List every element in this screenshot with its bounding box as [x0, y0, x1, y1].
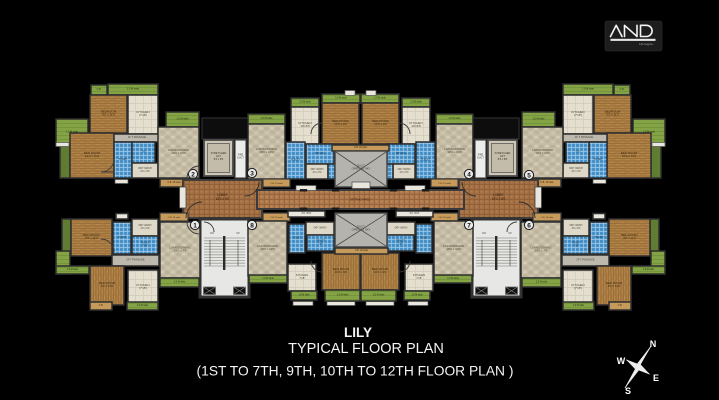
svg-text:(7'x8'): (7'x8')	[139, 286, 147, 290]
svg-text:7'x4': 7'x4'	[574, 244, 579, 247]
svg-text:1.0 M wide: 1.0 M wide	[373, 294, 385, 297]
svg-text:19'0 x 10'0: 19'0 x 10'0	[259, 150, 274, 154]
svg-text:C.B.: C.B.	[618, 305, 623, 307]
svg-text:2F T PASSAGE: 2F T PASSAGE	[128, 135, 146, 139]
svg-text:7'x4': 7'x4'	[318, 242, 323, 245]
svg-text:4: 4	[467, 171, 471, 178]
svg-text:9'0 x 11'0: 9'0 x 11'0	[608, 284, 621, 288]
svg-text:1.0 M wide: 1.0 M wide	[67, 269, 79, 271]
svg-text:1.0 M wide: 1.0 M wide	[299, 101, 311, 104]
svg-text:19'0 x 7'9: 19'0 x 7'9	[535, 249, 548, 253]
svg-text:DRY WASH: DRY WASH	[314, 227, 327, 230]
svg-text:4'0 x 6'0: 4'0 x 6'0	[140, 170, 150, 173]
svg-text:19'0 x 10'0: 19'0 x 10'0	[535, 151, 550, 155]
svg-text:4'0 x 6'0: 4'0 x 6'0	[313, 171, 322, 174]
svg-text:DUCT: DUCT	[477, 156, 484, 159]
svg-text:1.0 M wide: 1.0 M wide	[262, 277, 274, 280]
svg-text:OPEN TO SKY: OPEN TO SKY	[352, 167, 371, 171]
svg-text:7'x8': 7'x8'	[416, 276, 422, 280]
svg-text:TOILET: TOILET	[293, 237, 302, 240]
svg-text:8'0 x 8'0: 8'0 x 8'0	[214, 157, 224, 161]
svg-text:1.0 M wide: 1.0 M wide	[573, 305, 585, 307]
svg-text:SITTING PASS.: SITTING PASS.	[350, 198, 371, 202]
svg-text:8'0 x 8'0: 8'0 x 8'0	[498, 157, 508, 161]
svg-text:UP: UP	[236, 232, 240, 235]
svg-text:TOI: TOI	[576, 151, 580, 154]
svg-text:C.B. 15 wide: C.B. 15 wide	[270, 217, 283, 219]
svg-text:C.B.: C.B.	[620, 88, 625, 91]
svg-text:1.0 M wide: 1.0 M wide	[260, 117, 273, 120]
svg-text:10'0 x 9'0: 10'0 x 9'0	[374, 122, 387, 126]
svg-text:TOILET: TOILET	[291, 158, 300, 162]
svg-text:C.B. 22 wide: C.B. 22 wide	[354, 147, 368, 149]
svg-text:DN: DN	[210, 232, 214, 235]
svg-text:P.D. BOX: P.D. BOX	[410, 213, 420, 215]
svg-text:10'0 x 11'0: 10'0 x 11'0	[622, 154, 636, 158]
svg-text:19'0 x 10'0: 19'0 x 10'0	[260, 247, 275, 251]
svg-text:DRY BAL: DRY BAL	[396, 152, 407, 155]
svg-text:TOILET: TOILET	[594, 235, 603, 239]
svg-text:P.D. BOX: P.D. BOX	[302, 213, 312, 215]
svg-text:S: S	[625, 386, 631, 396]
svg-text:7'x4': 7'x4'	[143, 244, 148, 247]
svg-text:DUCT: DUCT	[237, 156, 244, 159]
svg-text:(7'x8'): (7'x8')	[574, 113, 582, 117]
svg-text:5: 5	[527, 172, 531, 179]
svg-text:(7'x8'): (7'x8')	[574, 286, 582, 290]
svg-text:2F T PASSAGE: 2F T PASSAGE	[576, 258, 594, 262]
svg-text:TOILET: TOILET	[593, 157, 602, 161]
svg-text:7'x4': 7'x4'	[398, 242, 403, 245]
svg-text:1.0 M wide: 1.0 M wide	[532, 118, 545, 121]
svg-text:1.0 M wide: 1.0 M wide	[176, 118, 189, 121]
svg-text:19'0 x 10'0: 19'0 x 10'0	[447, 150, 462, 154]
svg-text:(7'x8'): (7'x8')	[139, 113, 147, 117]
svg-text:1.0 M wide: 1.0 M wide	[298, 295, 310, 297]
svg-text:C.B. 15 wide: C.B. 15 wide	[541, 217, 554, 219]
svg-text:19'0 x 10'0: 19'0 x 10'0	[446, 247, 461, 251]
svg-text:3: 3	[250, 170, 254, 177]
svg-text:C.B. 15 wide: C.B. 15 wide	[540, 182, 554, 184]
svg-text:9'0 x 11'0: 9'0 x 11'0	[101, 284, 114, 288]
svg-text:1.0 M wide: 1.0 M wide	[582, 88, 595, 91]
svg-text:TOI: TOI	[142, 151, 146, 154]
svg-text:1.0 M wide: 1.0 M wide	[447, 277, 459, 280]
svg-text:1.0 M wide: 1.0 M wide	[335, 97, 347, 100]
svg-text:DRY WASH: DRY WASH	[395, 227, 408, 230]
svg-text:8: 8	[250, 222, 254, 229]
svg-text:DRY BAL: DRY BAL	[315, 152, 326, 155]
svg-text:TOILET: TOILET	[117, 235, 126, 239]
svg-text:1.0 M wide: 1.0 M wide	[411, 295, 423, 297]
svg-text:1: 1	[193, 222, 197, 229]
svg-text:C.B. 15 wide: C.B. 15 wide	[270, 183, 283, 185]
svg-text:(1ST TO 7TH, 9TH, 10TH TO 12TH: (1ST TO 7TH, 9TH, 10TH TO 12TH FLOOR PLA…	[197, 364, 514, 379]
svg-text:Life begins...: Life begins...	[639, 42, 655, 46]
svg-text:1.0 M wide: 1.0 M wide	[374, 97, 386, 100]
svg-text:TYPICAL FLOOR PLAN: TYPICAL FLOOR PLAN	[288, 341, 444, 357]
svg-text:6: 6	[527, 222, 531, 229]
svg-text:UP: UP	[508, 232, 512, 235]
svg-text:9'0 x 11'0: 9'0 x 11'0	[102, 113, 115, 117]
svg-text:1.0 M wide: 1.0 M wide	[536, 281, 548, 284]
svg-text:4'0 x 6'0: 4'0 x 6'0	[571, 170, 581, 173]
svg-text:C.B. 15 wide: C.B. 15 wide	[167, 182, 181, 184]
svg-text:7: 7	[467, 222, 471, 229]
svg-text:W: W	[617, 356, 626, 366]
svg-text:1.0 M wide: 1.0 M wide	[410, 101, 422, 104]
svg-text:1.0 M wide: 1.0 M wide	[174, 281, 186, 284]
svg-text:C.B. 15 wide: C.B. 15 wide	[168, 217, 181, 219]
svg-text:18'2 x 8'0: 18'2 x 8'0	[492, 197, 506, 201]
svg-text:7'x8': 7'x8'	[299, 276, 305, 280]
svg-text:C.B. 15 wide: C.B. 15 wide	[438, 183, 451, 185]
svg-text:LILY: LILY	[344, 325, 372, 340]
svg-text:10'0 x 11'0: 10'0 x 11'0	[85, 154, 99, 158]
svg-text:10'x6'8: 10'x6'8	[300, 124, 310, 128]
svg-text:TOILET: TOILET	[118, 157, 127, 161]
svg-text:2F T PASSAGE: 2F T PASSAGE	[575, 135, 593, 139]
svg-text:4'0 x 6'0: 4'0 x 6'0	[400, 171, 409, 174]
svg-text:C.B. 22 wide: C.B. 22 wide	[355, 250, 369, 252]
svg-text:9'6 x 11'0: 9'6 x 11'0	[623, 236, 636, 240]
svg-text:1.0 M wide: 1.0 M wide	[137, 305, 149, 307]
svg-text:19'0 x 7'9: 19'0 x 7'9	[174, 249, 187, 253]
svg-text:2F T PASSAGE: 2F T PASSAGE	[126, 258, 144, 262]
svg-text:OPEN TO SKY: OPEN TO SKY	[352, 228, 371, 232]
svg-text:19'0 x 10'0: 19'0 x 10'0	[171, 151, 186, 155]
svg-text:TOILET: TOILET	[420, 237, 429, 240]
svg-text:4'0 x 6'0: 4'0 x 6'0	[141, 227, 150, 230]
svg-text:C.B.: C.B.	[97, 88, 102, 91]
svg-text:DN: DN	[482, 232, 486, 235]
svg-text:C.B. 15 wide: C.B. 15 wide	[438, 217, 451, 219]
svg-text:4'0 x 6'0: 4'0 x 6'0	[572, 227, 581, 230]
svg-text:2: 2	[191, 171, 195, 178]
svg-text:C.B.: C.B.	[99, 305, 104, 307]
svg-text:1.0 M wide: 1.0 M wide	[127, 88, 140, 91]
svg-text:E: E	[653, 373, 659, 383]
svg-text:10'0 x 9'0: 10'0 x 9'0	[374, 270, 387, 274]
svg-text:18'2 x 8'0: 18'2 x 8'0	[216, 197, 230, 201]
svg-text:1.0 M wide: 1.0 M wide	[643, 269, 655, 271]
svg-text:10'0 x 9'0: 10'0 x 9'0	[335, 270, 348, 274]
svg-text:9'6 x 11'0: 9'6 x 11'0	[85, 236, 98, 240]
svg-text:TOILET: TOILET	[421, 158, 430, 162]
svg-text:1.0 M wide: 1.0 M wide	[448, 117, 461, 120]
svg-text:10'0 x 9'0: 10'0 x 9'0	[334, 122, 347, 126]
svg-text:1.0 M wide: 1.0 M wide	[337, 294, 349, 297]
svg-text:9'0 x 11'0: 9'0 x 11'0	[606, 113, 619, 117]
svg-text:10'x6'8: 10'x6'8	[411, 124, 421, 128]
svg-text:N: N	[650, 339, 657, 349]
